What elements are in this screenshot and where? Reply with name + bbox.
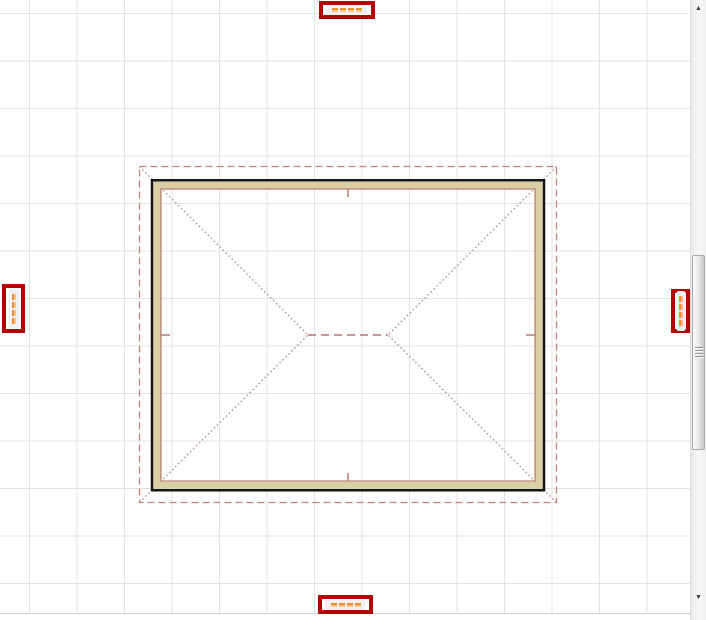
dimension-label-left[interactable]	[2, 284, 25, 333]
scroll-down-icon: ▼	[695, 594, 702, 601]
redacted-text-segment	[679, 320, 683, 326]
dimension-label-right[interactable]	[671, 289, 690, 333]
redacted-text-segment	[679, 312, 683, 318]
redacted-dimension-text	[327, 5, 367, 15]
redacted-dimension-text	[326, 600, 366, 610]
redacted-dimension-text	[9, 289, 19, 329]
redacted-text-segment	[12, 310, 16, 316]
redacted-text-segment	[12, 294, 16, 300]
redacted-text-segment	[348, 8, 354, 12]
redacted-text-segment	[679, 296, 683, 302]
scroll-up-button[interactable]: ▲	[691, 0, 706, 16]
redacted-text-segment	[12, 318, 16, 324]
redacted-text-segment	[332, 8, 338, 12]
dimension-label-bottom[interactable]	[318, 595, 373, 614]
drawing-viewport[interactable]	[0, 0, 690, 614]
redacted-text-segment	[679, 304, 683, 310]
roof-plan-drawing	[0, 0, 690, 613]
redacted-text-segment	[347, 603, 353, 607]
dimension-label-top[interactable]	[319, 1, 375, 19]
redacted-text-segment	[340, 8, 346, 12]
redacted-dimension-text	[676, 291, 686, 331]
thumb-grip-icon	[695, 347, 703, 358]
redacted-text-segment	[331, 603, 337, 607]
redacted-text-segment	[356, 8, 362, 12]
scroll-up-icon: ▲	[695, 5, 702, 12]
scroll-down-button[interactable]: ▼	[691, 589, 706, 605]
redacted-text-segment	[355, 603, 361, 607]
redacted-text-segment	[339, 603, 345, 607]
vertical-scrollbar[interactable]: ▲ ▼	[690, 0, 706, 620]
scrollbar-thumb[interactable]	[692, 255, 705, 450]
redacted-text-segment	[12, 302, 16, 308]
